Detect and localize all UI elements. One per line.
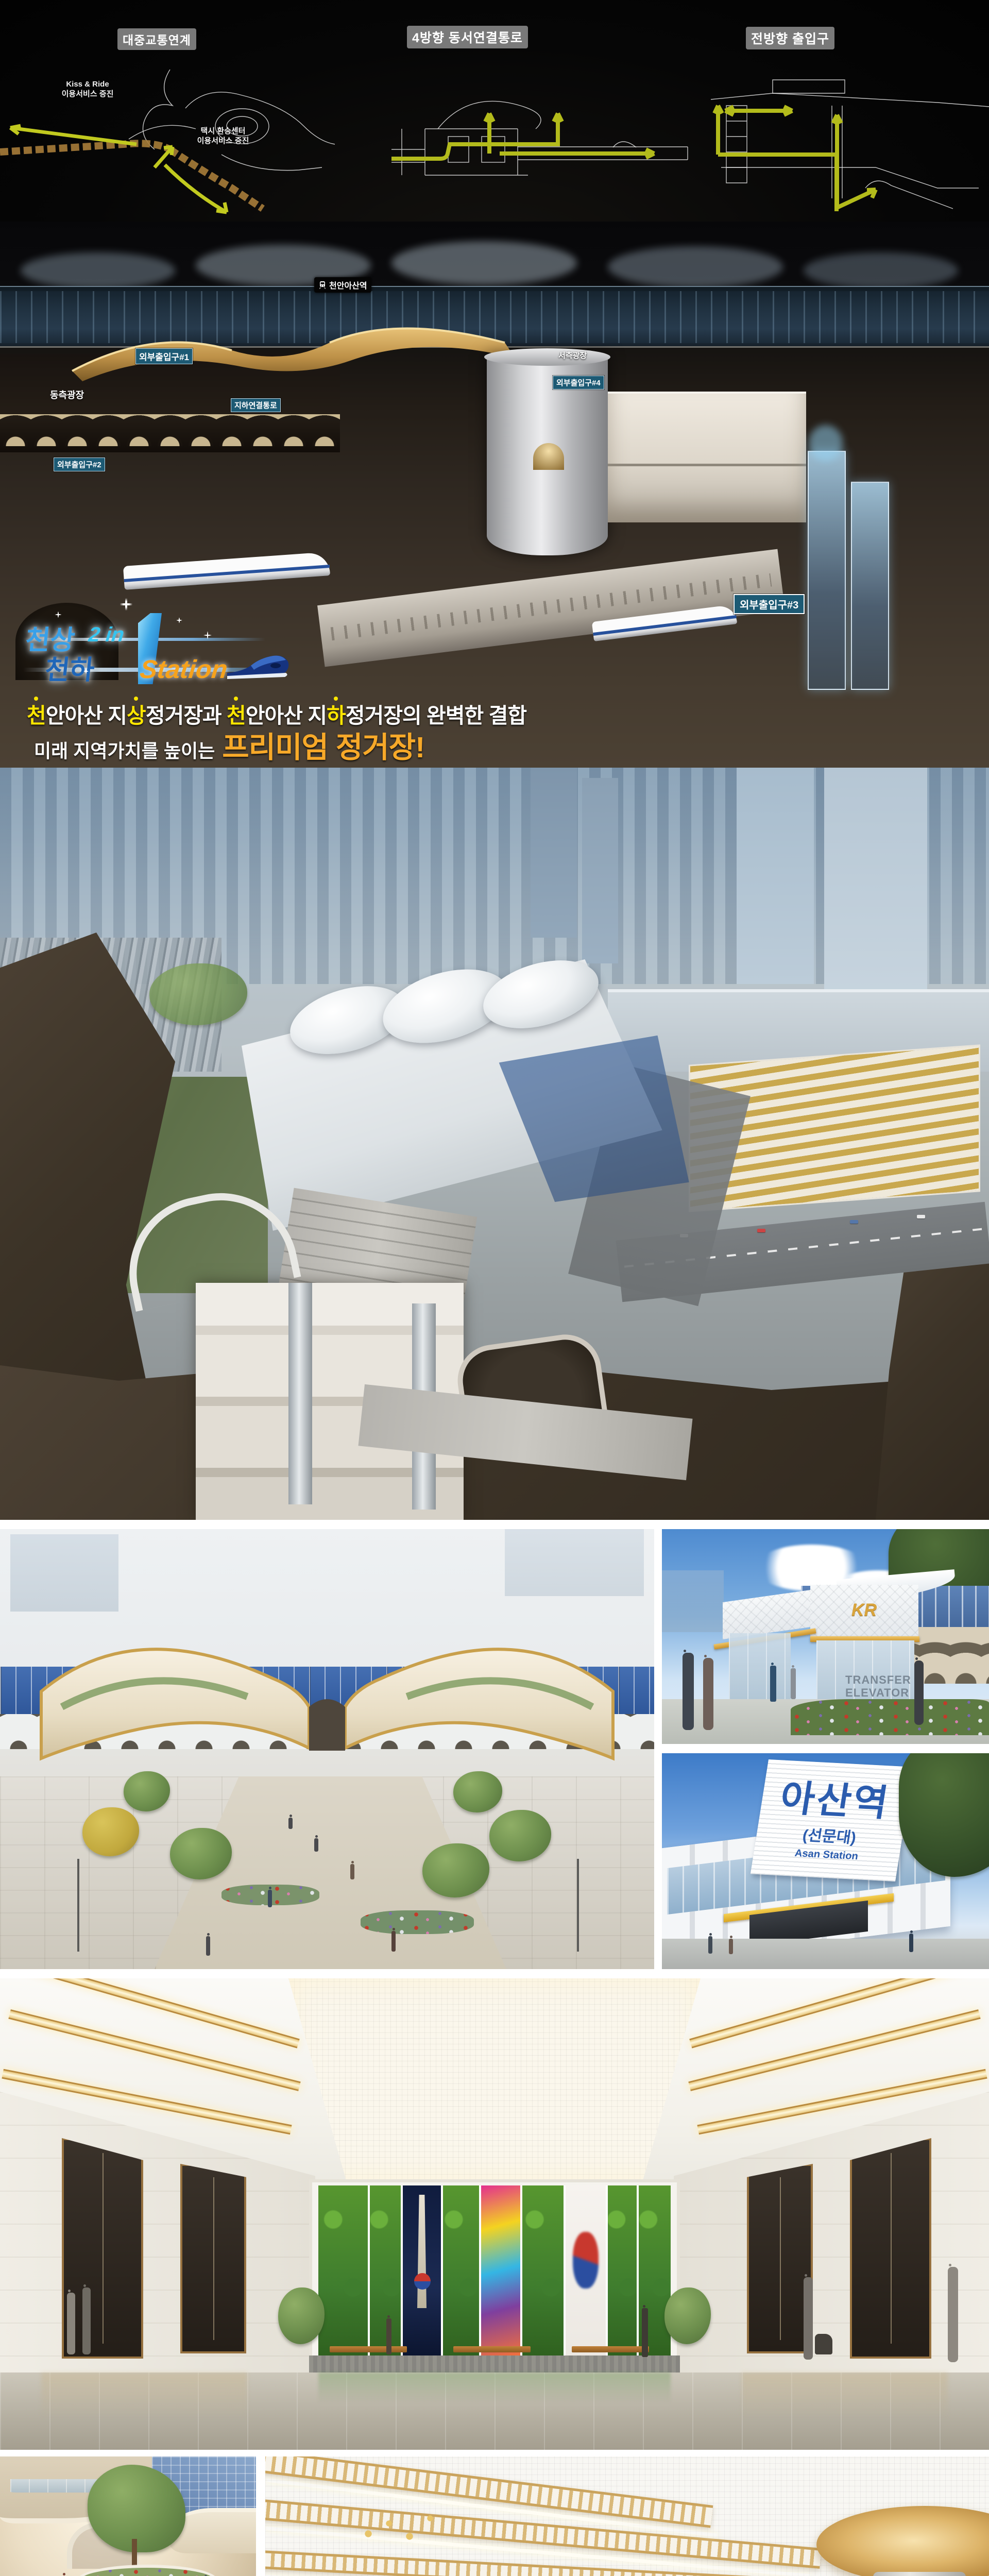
floor-reflection-warm [742, 2372, 948, 2419]
media-panel-flag [566, 2185, 606, 2355]
person-figure [288, 1818, 293, 1829]
elevator-lobby-render [0, 1978, 989, 2450]
car [850, 1220, 858, 1224]
west-plaza-label: 서측광장 [558, 350, 587, 361]
glass-elevator-shaft [808, 451, 846, 690]
curved-canopy-building [31, 1630, 623, 1779]
taxi-transfer-note: 택시 환승센터 이용서비스 증진 [195, 127, 251, 146]
slogan-line2-accent: 프리미엄 정거장! [222, 731, 424, 764]
person-figure [642, 2308, 648, 2357]
slogan-line2: 미래 지역가치를 높이는프리미엄 정거장! [34, 724, 424, 766]
logo-two-in: 2 in [88, 623, 126, 647]
tower-cap [484, 348, 610, 366]
person-figure [703, 1658, 713, 1730]
pendant-lights [358, 2487, 451, 2549]
sparkle-icon [54, 610, 63, 619]
transfer-elevator-render: KR TRANSFER ELEVATOR [662, 1529, 989, 1744]
person-figure [708, 1936, 712, 1954]
floor-reflection-warm [41, 2372, 247, 2419]
drum-lamp [873, 2572, 966, 2576]
elevator-core [288, 1283, 312, 1504]
underground-concourse-render [265, 2456, 989, 2576]
person-figure [909, 1934, 913, 1952]
granite-base [309, 2355, 680, 2373]
garden-panel [370, 2185, 401, 2355]
apartment-tower [737, 768, 814, 984]
asan-station-render: 아산역 (선문대) Asan Station [662, 1753, 989, 1969]
person-figure [82, 2287, 91, 2354]
canopy-glow [391, 241, 577, 285]
slogan-line2-normal: 미래 지역가치를 높이는 [34, 740, 215, 761]
flower-bed-foreground [791, 1699, 989, 1735]
cutaway-interior-room [608, 392, 806, 522]
green-belt [149, 963, 247, 1025]
distant-towers [505, 1529, 644, 1596]
tower-building [582, 778, 618, 963]
stroller [815, 2334, 832, 2354]
canopy-glow [804, 252, 958, 289]
panel1-title: 대중교통연계 [117, 28, 196, 50]
station-badge-label: 천안아산역 [329, 279, 367, 291]
transfer-line2: ELEVATOR [845, 1686, 909, 1699]
omnidirectional-entrance-sketch [711, 49, 989, 222]
east-plaza-label: 동측광장 [50, 388, 84, 401]
ktx-train [123, 552, 330, 590]
person-figure [206, 1936, 210, 1956]
station-sign-board: 아산역 (선문대) Asan Station [751, 1759, 913, 1882]
lit-arches [0, 414, 340, 446]
garden-panel [443, 2185, 479, 2355]
elevator-doors [747, 2164, 813, 2353]
lamp-post [577, 1859, 579, 1952]
soil-cut-right [876, 1231, 989, 1520]
east-west-corridor-sketch [391, 52, 711, 216]
sparkle-icon [82, 668, 90, 675]
panel3-title: 전방향 출입구 [746, 27, 834, 49]
media-panel-festival [481, 2185, 520, 2355]
garden-panel [608, 2185, 637, 2355]
train-stripe [124, 565, 330, 582]
person-figure [350, 1864, 354, 1879]
monument-shape [417, 2195, 427, 2308]
distant-towers [662, 1570, 724, 1632]
gold-canopy-swoosh [62, 322, 515, 399]
elevator-doors [850, 2138, 931, 2359]
taegeuk-flag-circle [573, 2232, 599, 2289]
car [917, 1215, 925, 1218]
exit2-callout: 외부출입구#2 [54, 457, 105, 471]
sunken-courtyard-render [0, 2456, 256, 2576]
person-figure [67, 2293, 75, 2354]
poster-page: { "top_panels": { "panel1": { "title": "… [0, 0, 989, 2576]
car [757, 1229, 765, 1232]
person-figure [791, 1668, 796, 1699]
media-panel-monument [403, 2185, 441, 2355]
garden-panel [522, 2185, 564, 2355]
sparkle-icon [202, 630, 213, 641]
east-plaza-render [0, 1529, 654, 1969]
person-figure [683, 1653, 694, 1730]
person-figure [391, 1931, 396, 1952]
aerial-birdseye-render [0, 768, 989, 1520]
person-figure [729, 1939, 733, 1954]
apartment-tower [824, 768, 927, 1010]
green-wall [318, 2185, 671, 2355]
top-diagram-strip: 대중교통연계 4방향 동서연결통로 전방향 출입구 Kiss & Ride 이용… [0, 0, 989, 222]
kr-logo: KR [851, 1600, 877, 1620]
taegeuk-icon [414, 2273, 431, 2290]
interior-floor-line [608, 464, 806, 466]
exit4-callout: 외부출입구#4 [553, 376, 604, 389]
exit1-callout: 외부출입구#1 [135, 348, 193, 364]
logo-train-nose [224, 650, 291, 681]
elevator-doors [180, 2164, 246, 2353]
logo-station-word: Station [139, 654, 229, 684]
floor-reflection-green [318, 2372, 671, 2403]
panel2-title: 4방향 동서연결통로 [407, 26, 528, 48]
wooden-bench [330, 2346, 407, 2352]
kiss-and-ride-note: Kiss & Ride 이용서비스 증진 [58, 80, 117, 99]
wooden-bench [453, 2346, 531, 2352]
garden-panel [318, 2185, 368, 2355]
tower-building [531, 768, 577, 938]
underground-passage-callout: 지하연결통로 [231, 398, 281, 412]
transfer-line1: TRANSFER [845, 1673, 911, 1686]
person-figure [268, 1890, 272, 1907]
sparkle-icon [117, 596, 135, 613]
lamp-post [77, 1859, 79, 1952]
person-figure [770, 1666, 776, 1702]
wooden-bench [572, 2346, 649, 2352]
person-figure [314, 1838, 318, 1852]
canopy-glow [21, 252, 175, 289]
two-in-one-logo: 천상 천하 2 in Station [21, 607, 299, 694]
person-figure [914, 1660, 924, 1725]
canopy-glow [608, 246, 783, 287]
transfer-glass-text: TRANSFER ELEVATOR [845, 1673, 911, 1700]
train-icon [318, 281, 327, 289]
station-cutaway-render: 천안아산역 외부출입구#1 동측광장 지하연결통로 외부출입구#2 서측광장 외… [0, 222, 989, 768]
person-figure [386, 2318, 391, 2354]
shaft-light-beam [809, 425, 843, 461]
person-figure [948, 2267, 958, 2362]
flower-bed [361, 1910, 474, 1934]
person-figure [804, 2277, 813, 2360]
station-name-badge: 천안아산역 [314, 277, 371, 293]
asan-sign-main: 아산역 [759, 1767, 912, 1827]
tower-arch-window [533, 443, 564, 470]
glass-elevator-shaft [851, 482, 889, 690]
sparkle-icon [175, 616, 183, 624]
ceiling-center-luminous [288, 1978, 701, 2180]
exit3-callout: 외부출입구#3 [734, 594, 805, 614]
